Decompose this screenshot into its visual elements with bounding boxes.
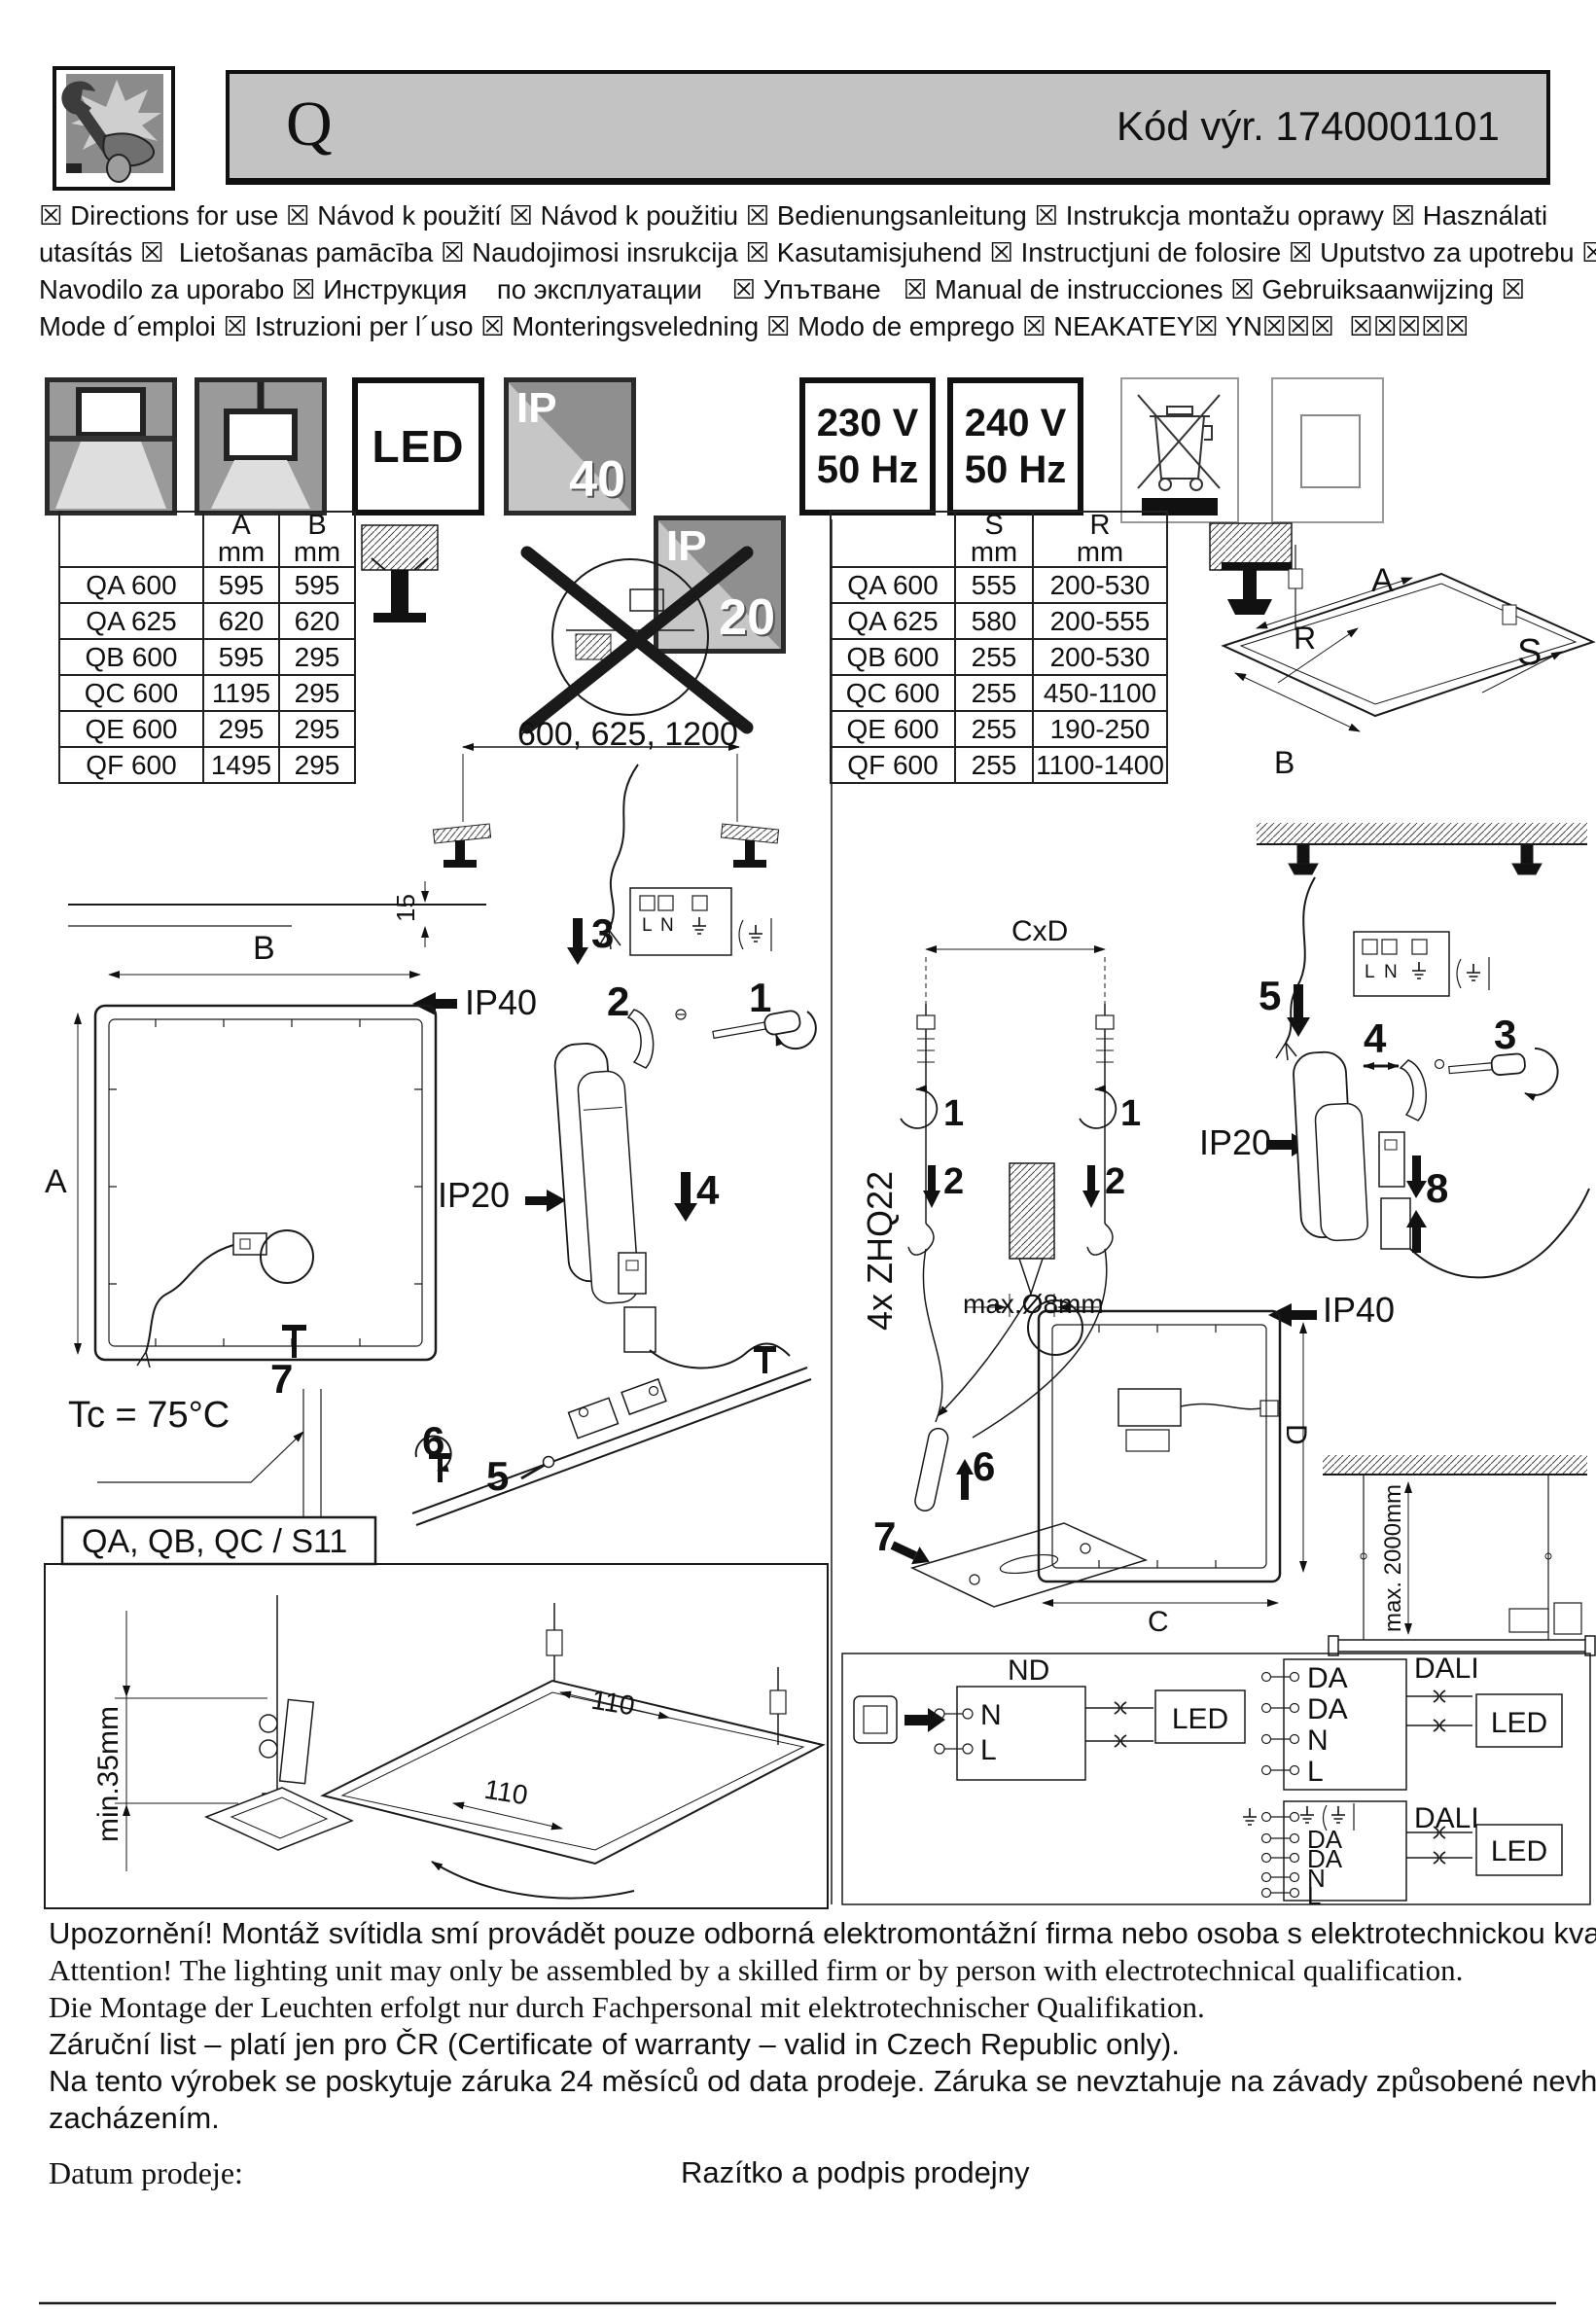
section-label: QA, QB, QC / S11 bbox=[82, 1525, 347, 1560]
dali-label-1: DALI bbox=[1414, 1653, 1479, 1685]
mounting-plate-right bbox=[889, 1523, 1146, 1607]
cover-clip-right bbox=[1401, 1060, 1444, 1121]
step-4-label: 4 bbox=[696, 1169, 719, 1212]
dali2-terminal-l: L bbox=[1307, 1883, 1321, 1909]
driver-unit-left bbox=[553, 1041, 790, 1368]
max-drop-label: max. 2000mm bbox=[1381, 1484, 1405, 1632]
dali-label-2: DALI bbox=[1414, 1803, 1479, 1834]
led-label-1: LED bbox=[1155, 1704, 1245, 1735]
stamp-signature-label: Razítko a podpis prodejny bbox=[681, 2157, 1029, 2189]
max-drill-label: max.Ø8mm bbox=[963, 1290, 1104, 1318]
install-detail-box bbox=[45, 1564, 828, 1908]
dim-15-label: 15 bbox=[393, 894, 419, 922]
dali1-terminal-l: L bbox=[1307, 1757, 1324, 1788]
step-8-label: 8 bbox=[1426, 1167, 1448, 1210]
dim-B-label: B bbox=[253, 932, 275, 967]
step-1-label-right-b: 1 bbox=[1120, 1095, 1141, 1134]
panel-square-right bbox=[1028, 1300, 1280, 1582]
nd-label: ND bbox=[1008, 1655, 1049, 1687]
step-4-label-right: 4 bbox=[1364, 1017, 1386, 1060]
terminal-N-left: N bbox=[660, 916, 674, 936]
supply-arrow bbox=[904, 1708, 945, 1732]
anchors-label: 4x ZHQ22 bbox=[862, 1171, 899, 1331]
step4-arrow-left bbox=[674, 1172, 697, 1222]
step3-arrow bbox=[567, 918, 588, 965]
led-label-2: LED bbox=[1476, 1708, 1562, 1739]
dim-B2-label: B bbox=[1274, 747, 1295, 780]
dim-A2-label: A bbox=[1371, 564, 1394, 599]
terminal-L-right: L bbox=[1365, 963, 1375, 982]
dim-C-label: C bbox=[1148, 1607, 1169, 1638]
min35-label: min.35mm bbox=[93, 1706, 124, 1842]
led-label-3: LED bbox=[1476, 1836, 1562, 1867]
nd-terminal-L: L bbox=[980, 1735, 997, 1766]
cxd-label: CxD bbox=[1011, 916, 1068, 947]
ip40-label-left: IP40 bbox=[465, 984, 537, 1021]
warning-line-de: Die Montage der Leuchten erfolgt nur dur… bbox=[49, 1992, 1205, 2024]
dim-110-label-a: 110 bbox=[589, 1686, 637, 1721]
warranty-line-1: Záruční list – platí jen pro ČR (Certifi… bbox=[49, 2029, 1180, 2061]
step-6-label: 6 bbox=[422, 1420, 444, 1463]
warning-line-cz: Upozornění! Montáž svítidla smí provádět… bbox=[49, 1918, 1596, 1950]
dim-110-label-b: 110 bbox=[482, 1775, 530, 1810]
ip20-label-left: IP20 bbox=[438, 1177, 510, 1214]
ceiling-anchor-icon bbox=[1210, 523, 1292, 615]
step-5-label: 5 bbox=[486, 1455, 509, 1498]
nd-terminal-N: N bbox=[980, 1700, 1002, 1731]
step-7-label: 7 bbox=[270, 1358, 293, 1401]
terminal-N-right: N bbox=[1384, 963, 1398, 982]
instruction-sheet: { "header": { "product_letter": "Q", "co… bbox=[0, 0, 1596, 2311]
dali1-terminal-n: N bbox=[1307, 1725, 1329, 1757]
drop-ceiling-drawing bbox=[1323, 1455, 1595, 1655]
panel-frame-left bbox=[78, 975, 436, 1368]
warranty-line-2: Na tento výrobek se poskytuje záruka 24 … bbox=[49, 2066, 1596, 2098]
ip20-arrow-left bbox=[525, 1190, 566, 1212]
warranty-line-3: zacházením. bbox=[49, 2103, 220, 2135]
step6-arrow-right bbox=[956, 1459, 974, 1500]
terminal-L-left: L bbox=[642, 916, 653, 936]
step-2-label-right-b: 2 bbox=[1105, 1163, 1125, 1202]
step-3-label: 3 bbox=[591, 912, 614, 955]
ip40-arrow-right bbox=[1268, 1303, 1317, 1327]
step-3-label-right: 3 bbox=[1494, 1013, 1516, 1056]
wall-switch-icon bbox=[854, 1696, 897, 1743]
t-rail-clip-icon bbox=[362, 525, 438, 622]
dali1-terminal-da2: DA bbox=[1307, 1694, 1348, 1725]
earth-bracket-icon bbox=[1457, 957, 1489, 990]
rail-assembly-left bbox=[282, 1325, 811, 1525]
prohibited-mounting-icon bbox=[527, 552, 747, 728]
dim-R-label: R bbox=[1294, 622, 1316, 656]
dim-A-label: A bbox=[45, 1165, 67, 1200]
suspension-assembly bbox=[206, 1595, 352, 1850]
step-1-label-right-a: 1 bbox=[943, 1095, 964, 1134]
span-dimension-label: 600, 625, 1200 bbox=[517, 718, 738, 753]
ip20-label-right: IP20 bbox=[1199, 1124, 1271, 1161]
dali1-terminal-da1: DA bbox=[1307, 1663, 1348, 1694]
ip40-label-right: IP40 bbox=[1323, 1292, 1395, 1329]
warning-line-en: Attention! The lighting unit may only be… bbox=[49, 1955, 1463, 1987]
step-7-label-right: 7 bbox=[873, 1515, 896, 1558]
date-of-sale-label: Datum prodeje: bbox=[49, 2157, 243, 2190]
step-5-label-right: 5 bbox=[1259, 975, 1281, 1017]
dim-S-label: S bbox=[1517, 634, 1542, 673]
step-2-label-right-a: 2 bbox=[943, 1163, 964, 1202]
earth-bracket-icon bbox=[739, 918, 771, 951]
step-2-label: 2 bbox=[607, 980, 629, 1023]
panel-perspective-left bbox=[323, 1603, 823, 1899]
step-1-label: 1 bbox=[749, 977, 771, 1019]
cover-clip-left bbox=[628, 1010, 686, 1068]
driver-unit-right bbox=[1293, 1050, 1589, 1277]
tc-label: Tc = 75°C bbox=[68, 1397, 230, 1436]
step-6-label-right: 6 bbox=[973, 1445, 995, 1488]
cxd-anchor-drawing bbox=[901, 949, 1116, 1255]
dim-D-label: D bbox=[1281, 1424, 1312, 1445]
